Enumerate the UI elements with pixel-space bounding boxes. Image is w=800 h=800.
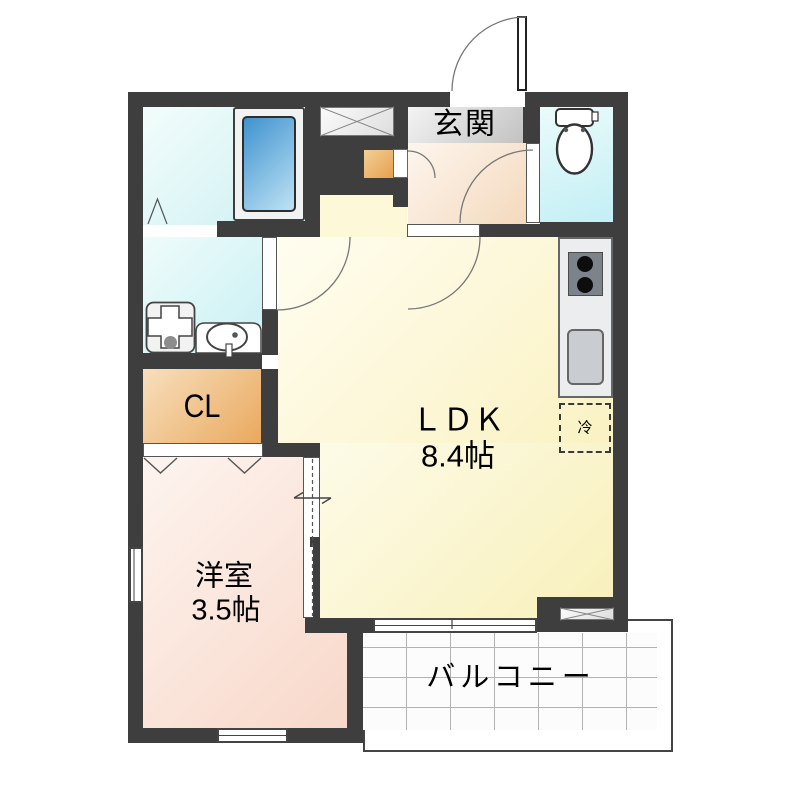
- shoe-cabinet: [364, 150, 393, 178]
- wall-segment: [393, 178, 408, 207]
- entrance-label: 玄関: [433, 110, 497, 140]
- closet-label: CL: [184, 390, 221, 422]
- wall-segment: [320, 150, 364, 178]
- washroom-area: [143, 237, 262, 355]
- wall-right: [613, 92, 628, 632]
- balcony-label: バルコニー: [426, 664, 595, 693]
- stove: [568, 252, 603, 296]
- wall-left: [128, 92, 143, 743]
- wall-western-balcony: [347, 633, 363, 743]
- wall-segment: [261, 443, 320, 457]
- wall-toilet-bottom: [540, 222, 613, 237]
- shoe-cabinet-door: [393, 149, 408, 178]
- entrance-floor: [408, 143, 526, 224]
- kitchen-sink: [567, 329, 604, 385]
- western-room-label: 洋室: [195, 563, 253, 592]
- ldk-door-leaf: [407, 224, 480, 237]
- refrigerator-label: 冷: [577, 421, 592, 436]
- balcony-sliding-window: [373, 618, 537, 633]
- front-door-leaf: [517, 16, 527, 91]
- pipe-space-box: [560, 608, 614, 620]
- wall-segment: [305, 618, 373, 633]
- bathroom-door: [143, 225, 217, 237]
- wall-segment: [393, 107, 408, 149]
- toilet-room-area: [540, 107, 613, 222]
- closet-door: [143, 443, 263, 457]
- shaft-box: [320, 107, 394, 136]
- window-western-room: [217, 728, 288, 743]
- wall-segment: [480, 224, 540, 237]
- front-door-arc: [452, 17, 526, 91]
- western-room-size-label: 3.5帖: [191, 597, 260, 626]
- wall-bathroom-right: [305, 107, 320, 237]
- wall-segment: [320, 178, 394, 195]
- bathtub: [242, 116, 296, 212]
- sliding-door-pocket-wall: [313, 545, 320, 618]
- front-door-opening: [450, 92, 525, 107]
- wall-washroom-bottom: [143, 353, 262, 369]
- floor-plan: 玄関 ＬＤＫ 8.4帖 洋室 3.5帖 CL 冷 バルコニー: [0, 0, 800, 800]
- wall-washroom-right: [262, 310, 278, 355]
- window-left: [129, 547, 143, 603]
- ldk-size-label: 8.4帖: [421, 441, 495, 472]
- toilet-door-leaf: [526, 143, 540, 223]
- wall-closet-right: [261, 369, 278, 443]
- wall-top: [128, 92, 628, 107]
- washroom-door-leaf: [262, 237, 277, 310]
- wall-segment: [320, 136, 394, 150]
- wall-segment: [217, 221, 320, 237]
- wall-segment: [523, 107, 540, 143]
- ldk-label: ＬＤＫ: [412, 405, 505, 436]
